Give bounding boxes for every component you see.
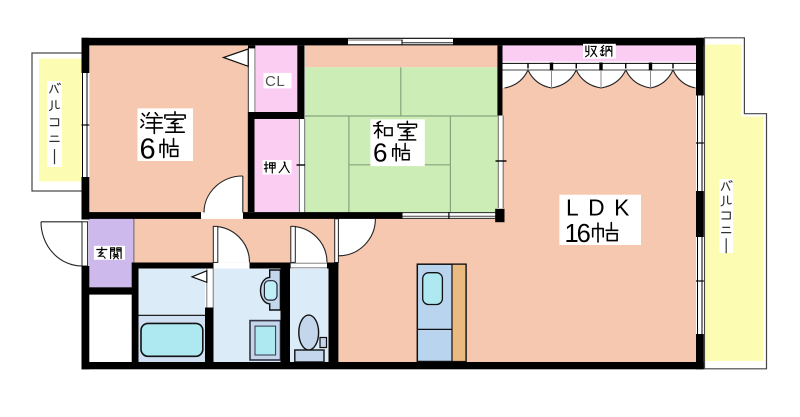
svg-text:LDK: LDK — [566, 194, 639, 220]
svg-text:CL: CL — [265, 73, 285, 90]
svg-text:6: 6 — [373, 137, 387, 167]
svg-text:16: 16 — [565, 220, 591, 248]
svg-text:6: 6 — [140, 133, 156, 165]
